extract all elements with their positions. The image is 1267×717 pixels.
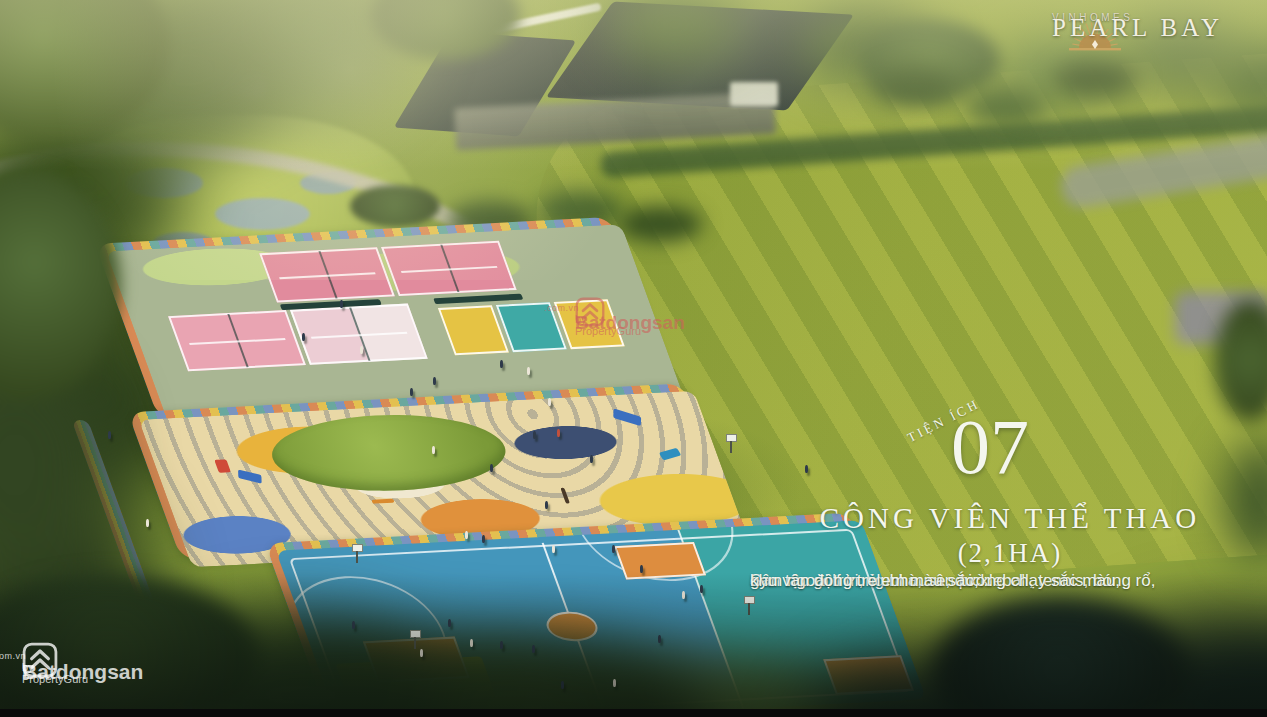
trees-bottom-right	[930, 595, 1190, 717]
play-post	[560, 488, 570, 504]
person-figure	[410, 388, 413, 396]
trees-top-left	[0, 0, 170, 140]
person-figure	[352, 621, 355, 629]
pickleball-court	[168, 310, 306, 371]
play-tower	[214, 459, 231, 472]
person-figure	[433, 377, 436, 385]
person-figure	[527, 367, 530, 375]
feature-number: 07	[930, 408, 1050, 486]
tennis-court	[381, 241, 517, 296]
feature-area: (2,1HA)	[810, 538, 1210, 569]
watermark-byline: by PropertyGuru	[575, 313, 641, 337]
watermark-suffix: .com.vn	[0, 651, 26, 661]
tennis-court	[259, 247, 395, 302]
person-figure	[590, 455, 593, 463]
description-line: khu vận động trẻ em màu sắc,...	[750, 570, 993, 592]
letterbox-bar	[0, 709, 1267, 717]
key-area	[614, 542, 706, 580]
person-figure	[640, 565, 643, 573]
person-figure	[302, 333, 305, 341]
person-figure	[612, 545, 615, 553]
basketball-hoop	[352, 544, 363, 552]
person-figure	[420, 649, 423, 657]
person-figure	[613, 679, 616, 687]
grass-mound	[259, 409, 518, 496]
person-figure	[360, 346, 363, 354]
trees-top-right	[860, 20, 1000, 100]
basketball-hoop	[744, 596, 755, 604]
slide	[613, 408, 641, 426]
person-figure	[552, 545, 555, 553]
person-figure	[432, 446, 435, 454]
basketball-hoop	[410, 630, 421, 638]
court-bench	[433, 294, 523, 305]
person-figure	[146, 519, 149, 527]
person-figure	[561, 681, 564, 689]
person-figure	[482, 535, 485, 543]
person-figure	[470, 639, 473, 647]
pickleball-court	[290, 304, 428, 365]
aerial-render-scene: VINHOMES PEARL BAY TIỆN ÍCH 07 CÔNG VIÊN…	[0, 0, 1267, 717]
monkey-bars	[371, 499, 394, 504]
watermark-byline: by PropertyGuru	[22, 661, 88, 685]
person-figure	[545, 501, 548, 509]
person-figure	[700, 585, 703, 593]
person-figure	[548, 398, 551, 406]
person-figure	[532, 645, 535, 653]
clubhouse-annex	[730, 82, 778, 106]
person-figure	[108, 431, 111, 439]
person-figure	[500, 641, 503, 649]
person-figure	[658, 635, 661, 643]
person-figure	[500, 360, 503, 368]
person-figure	[533, 431, 536, 439]
person-figure	[805, 465, 808, 473]
basketball-hoop	[726, 434, 737, 442]
person-figure	[448, 619, 451, 627]
person-figure	[340, 300, 343, 308]
person-figure	[557, 429, 560, 437]
person-figure	[465, 531, 468, 539]
feature-title: CÔNG VIÊN THỂ THAO	[810, 502, 1210, 535]
project-name: PEARL BAY	[1052, 14, 1223, 42]
person-figure	[490, 464, 493, 472]
watermark-suffix: .com.vn	[544, 303, 579, 313]
slide	[659, 448, 682, 461]
palm-trees	[350, 185, 440, 227]
slide	[238, 470, 262, 484]
key-area	[823, 655, 914, 694]
person-figure	[682, 591, 685, 599]
